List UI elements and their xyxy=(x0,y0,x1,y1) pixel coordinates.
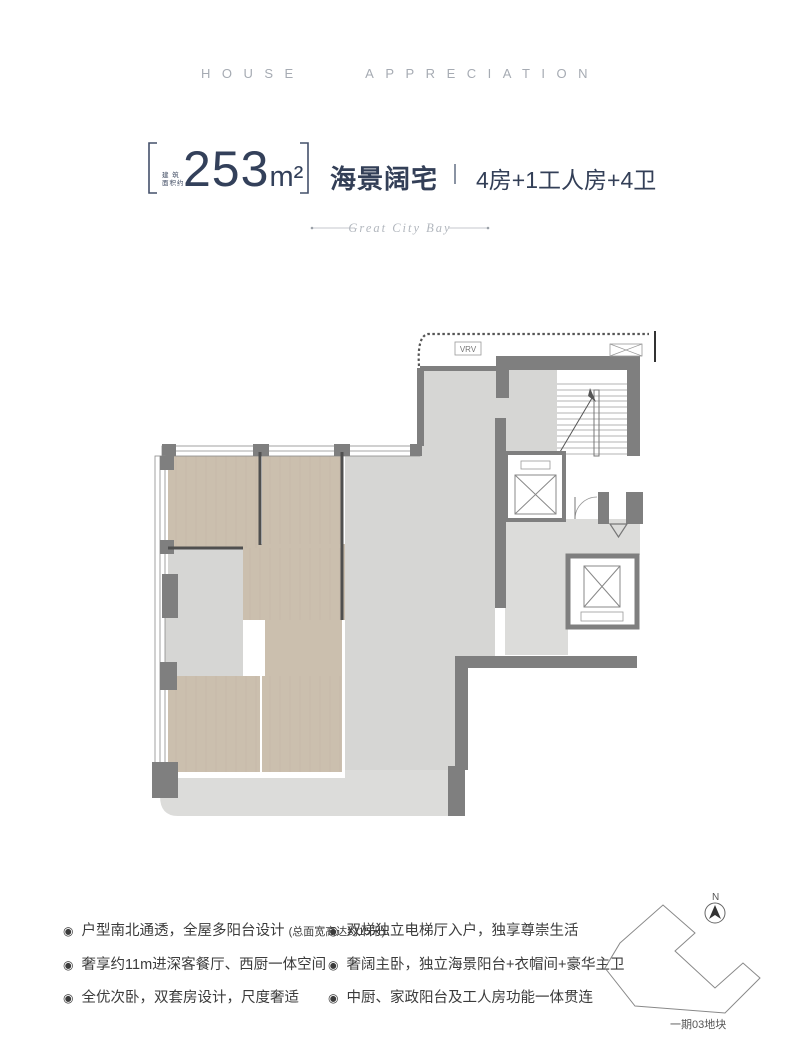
svg-text:一期03地块: 一期03地块 xyxy=(670,1018,726,1031)
svg-text:N: N xyxy=(712,892,719,903)
svg-text:VRV: VRV xyxy=(460,345,477,354)
svg-text:Great City Bay: Great City Bay xyxy=(348,221,451,235)
